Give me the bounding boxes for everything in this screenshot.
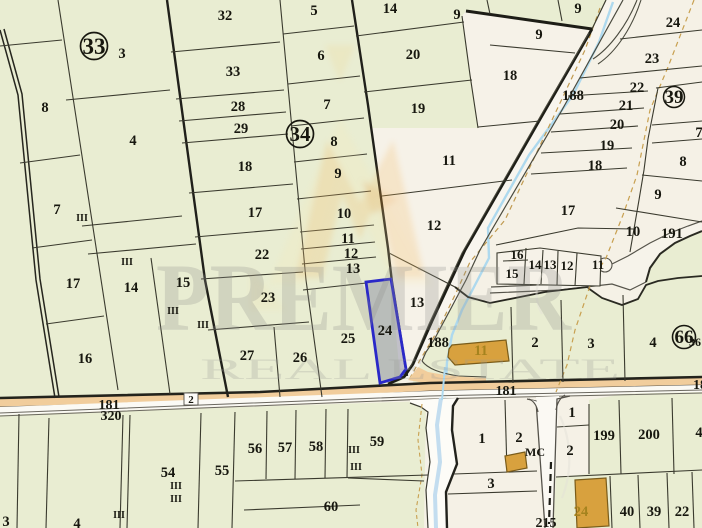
svg-text:56: 56 xyxy=(248,441,263,457)
svg-text:200: 200 xyxy=(638,427,660,443)
svg-text:23: 23 xyxy=(645,51,660,67)
svg-text:19: 19 xyxy=(411,101,426,117)
svg-text:32: 32 xyxy=(218,8,233,24)
svg-text:26: 26 xyxy=(293,350,308,366)
svg-text:22: 22 xyxy=(630,80,645,96)
svg-text:7: 7 xyxy=(695,125,702,141)
svg-text:III: III xyxy=(121,257,133,268)
svg-text:III: III xyxy=(348,445,360,456)
svg-text:11: 11 xyxy=(442,153,456,169)
svg-text:14: 14 xyxy=(383,1,398,17)
svg-text:4: 4 xyxy=(73,516,80,528)
svg-text:20: 20 xyxy=(610,117,625,133)
svg-text:5: 5 xyxy=(310,3,317,19)
svg-text:199: 199 xyxy=(593,428,615,444)
svg-text:12: 12 xyxy=(561,258,574,273)
svg-text:III: III xyxy=(76,213,88,224)
svg-text:1: 1 xyxy=(478,431,485,447)
svg-text:9: 9 xyxy=(535,27,542,43)
svg-text:215: 215 xyxy=(536,516,557,528)
svg-text:54: 54 xyxy=(161,465,176,481)
svg-text:13: 13 xyxy=(544,257,558,272)
svg-text:18: 18 xyxy=(238,159,253,175)
svg-text:13: 13 xyxy=(346,261,361,277)
svg-text:60: 60 xyxy=(324,499,339,515)
svg-text:17: 17 xyxy=(66,276,81,292)
svg-text:12: 12 xyxy=(344,246,359,262)
svg-text:8: 8 xyxy=(330,134,337,150)
svg-text:55: 55 xyxy=(215,463,230,479)
svg-text:23: 23 xyxy=(261,290,276,306)
svg-text:12: 12 xyxy=(427,218,442,234)
svg-text:58: 58 xyxy=(309,439,324,455)
svg-text:20: 20 xyxy=(406,47,421,63)
svg-text:2: 2 xyxy=(531,335,538,351)
svg-text:14: 14 xyxy=(124,280,139,296)
svg-text:6: 6 xyxy=(317,48,324,64)
svg-text:9: 9 xyxy=(334,166,341,182)
svg-text:3: 3 xyxy=(587,336,594,352)
svg-text:7: 7 xyxy=(323,97,330,113)
svg-text:188: 188 xyxy=(562,88,584,104)
svg-text:2: 2 xyxy=(188,394,194,406)
svg-text:191: 191 xyxy=(661,226,683,242)
svg-text:11: 11 xyxy=(474,343,488,359)
svg-text:10: 10 xyxy=(626,224,641,240)
svg-text:40: 40 xyxy=(620,504,635,520)
svg-text:III: III xyxy=(350,462,362,473)
svg-text:13: 13 xyxy=(410,295,425,311)
svg-text:16: 16 xyxy=(78,351,93,367)
svg-text:1: 1 xyxy=(568,405,575,421)
svg-text:39: 39 xyxy=(647,504,662,520)
svg-text:III: III xyxy=(113,510,125,521)
svg-text:59: 59 xyxy=(370,434,385,450)
svg-text:33: 33 xyxy=(83,34,106,59)
svg-text:МС: МС xyxy=(525,445,545,459)
svg-text:3: 3 xyxy=(2,514,9,528)
svg-text:8: 8 xyxy=(679,154,686,170)
svg-text:15: 15 xyxy=(176,275,191,291)
svg-text:24: 24 xyxy=(666,15,681,31)
svg-text:4: 4 xyxy=(649,335,656,351)
svg-text:39: 39 xyxy=(665,87,684,108)
svg-text:66: 66 xyxy=(675,327,694,348)
svg-text:29: 29 xyxy=(234,121,249,137)
svg-text:III: III xyxy=(197,320,209,331)
svg-text:2: 2 xyxy=(515,430,522,446)
svg-text:14: 14 xyxy=(529,257,543,272)
svg-text:17: 17 xyxy=(248,205,263,221)
svg-text:16: 16 xyxy=(511,247,525,262)
svg-text:57: 57 xyxy=(278,440,293,456)
svg-text:18: 18 xyxy=(693,378,702,393)
svg-text:18: 18 xyxy=(503,68,518,84)
svg-text:11: 11 xyxy=(341,231,355,247)
svg-text:3: 3 xyxy=(118,46,125,62)
svg-text:181: 181 xyxy=(496,384,517,399)
svg-text:7: 7 xyxy=(53,202,60,218)
svg-text:27: 27 xyxy=(240,348,255,364)
svg-text:9: 9 xyxy=(654,187,661,203)
svg-text:4: 4 xyxy=(695,425,702,441)
svg-text:188: 188 xyxy=(427,335,449,351)
svg-text:17: 17 xyxy=(561,203,576,219)
svg-text:9: 9 xyxy=(574,1,581,17)
svg-text:21: 21 xyxy=(619,98,634,114)
svg-text:REAL ESTATE: REAL ESTATE xyxy=(200,353,620,386)
svg-text:33: 33 xyxy=(226,64,241,80)
svg-text:320: 320 xyxy=(101,409,122,424)
svg-text:18: 18 xyxy=(588,158,603,174)
svg-text:34: 34 xyxy=(290,122,312,146)
svg-text:III: III xyxy=(167,306,179,317)
svg-text:4: 4 xyxy=(129,133,136,149)
svg-text:22: 22 xyxy=(675,504,690,520)
svg-text:24: 24 xyxy=(574,504,589,520)
svg-text:15: 15 xyxy=(506,266,520,281)
svg-text:III: III xyxy=(170,494,182,505)
svg-text:25: 25 xyxy=(341,331,356,347)
svg-text:11: 11 xyxy=(592,257,604,272)
svg-text:III: III xyxy=(170,481,182,492)
svg-text:2: 2 xyxy=(566,443,573,459)
svg-text:8: 8 xyxy=(41,100,48,116)
svg-text:10: 10 xyxy=(337,206,352,222)
svg-text:19: 19 xyxy=(600,138,615,154)
svg-text:9: 9 xyxy=(453,7,460,23)
svg-text:3: 3 xyxy=(487,476,494,492)
svg-text:24: 24 xyxy=(378,323,393,339)
svg-text:22: 22 xyxy=(255,247,270,263)
svg-text:28: 28 xyxy=(231,99,246,115)
